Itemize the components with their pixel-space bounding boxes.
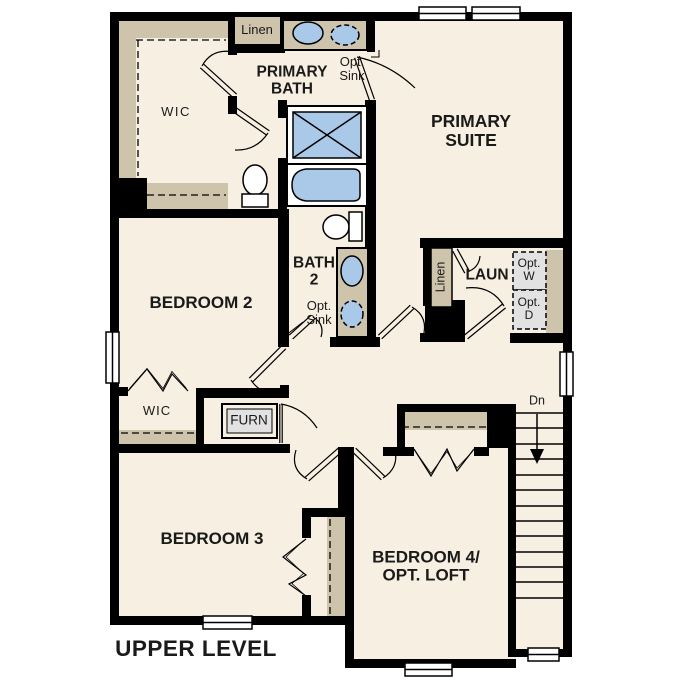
room-label-primary-bath: PRIMARYBATH — [257, 64, 328, 97]
toilet-icon-bath2 — [323, 212, 362, 241]
window-icon-right — [560, 352, 573, 396]
sink-icon — [293, 22, 323, 44]
toilet-icon — [242, 165, 268, 207]
floor-plan-drawing — [0, 0, 687, 687]
bathtub-icon — [287, 164, 367, 206]
optional-sink-icon-bath2 — [341, 301, 363, 327]
room-label-wic-primary: WIC — [161, 105, 191, 119]
fixture-label-opt-dryer: Opt.D — [518, 296, 541, 322]
plan-title: UPPER LEVEL — [115, 637, 277, 661]
floor-plan: WIC Linen PRIMARYBATH Opt.Sink PRIMARYSU… — [0, 0, 687, 687]
room-label-laundry: LAUN — [465, 268, 508, 285]
stairs-direction-label: Dn — [529, 394, 545, 408]
room-label-bedroom-4: BEDROOM 4/OPT. LOFT — [372, 549, 480, 586]
window-icon-top-1 — [419, 7, 466, 20]
fixture-label-opt-washer: Opt.W — [518, 257, 541, 283]
sink-icon-bath2 — [341, 256, 363, 286]
fixture-label-furnace: FURN — [230, 414, 268, 429]
room-label-wic-bedroom2: WIC — [143, 404, 171, 418]
room-label-bedroom-2: BEDROOM 2 — [150, 294, 253, 312]
fixture-label-opt-sink-bath2: Opt.Sink — [306, 299, 331, 327]
fixture-label-opt-sink-primary: Opt.Sink — [339, 55, 364, 83]
window-icon-left — [106, 332, 119, 383]
closet-label-linen-primary-bath: Linen — [241, 23, 273, 37]
shower-icon — [287, 106, 367, 164]
room-label-bedroom-3: BEDROOM 3 — [161, 530, 264, 548]
window-icon-stairs — [528, 648, 559, 661]
window-icon-bedroom4 — [405, 663, 452, 676]
window-icon-top-2 — [472, 7, 520, 20]
window-icon-bedroom3 — [203, 616, 252, 629]
closet-label-linen-laundry: Linen — [434, 262, 448, 293]
optional-sink-icon — [331, 25, 359, 45]
room-label-primary-suite: PRIMARYSUITE — [431, 112, 511, 150]
room-label-bath-2: BATH2 — [293, 255, 335, 288]
